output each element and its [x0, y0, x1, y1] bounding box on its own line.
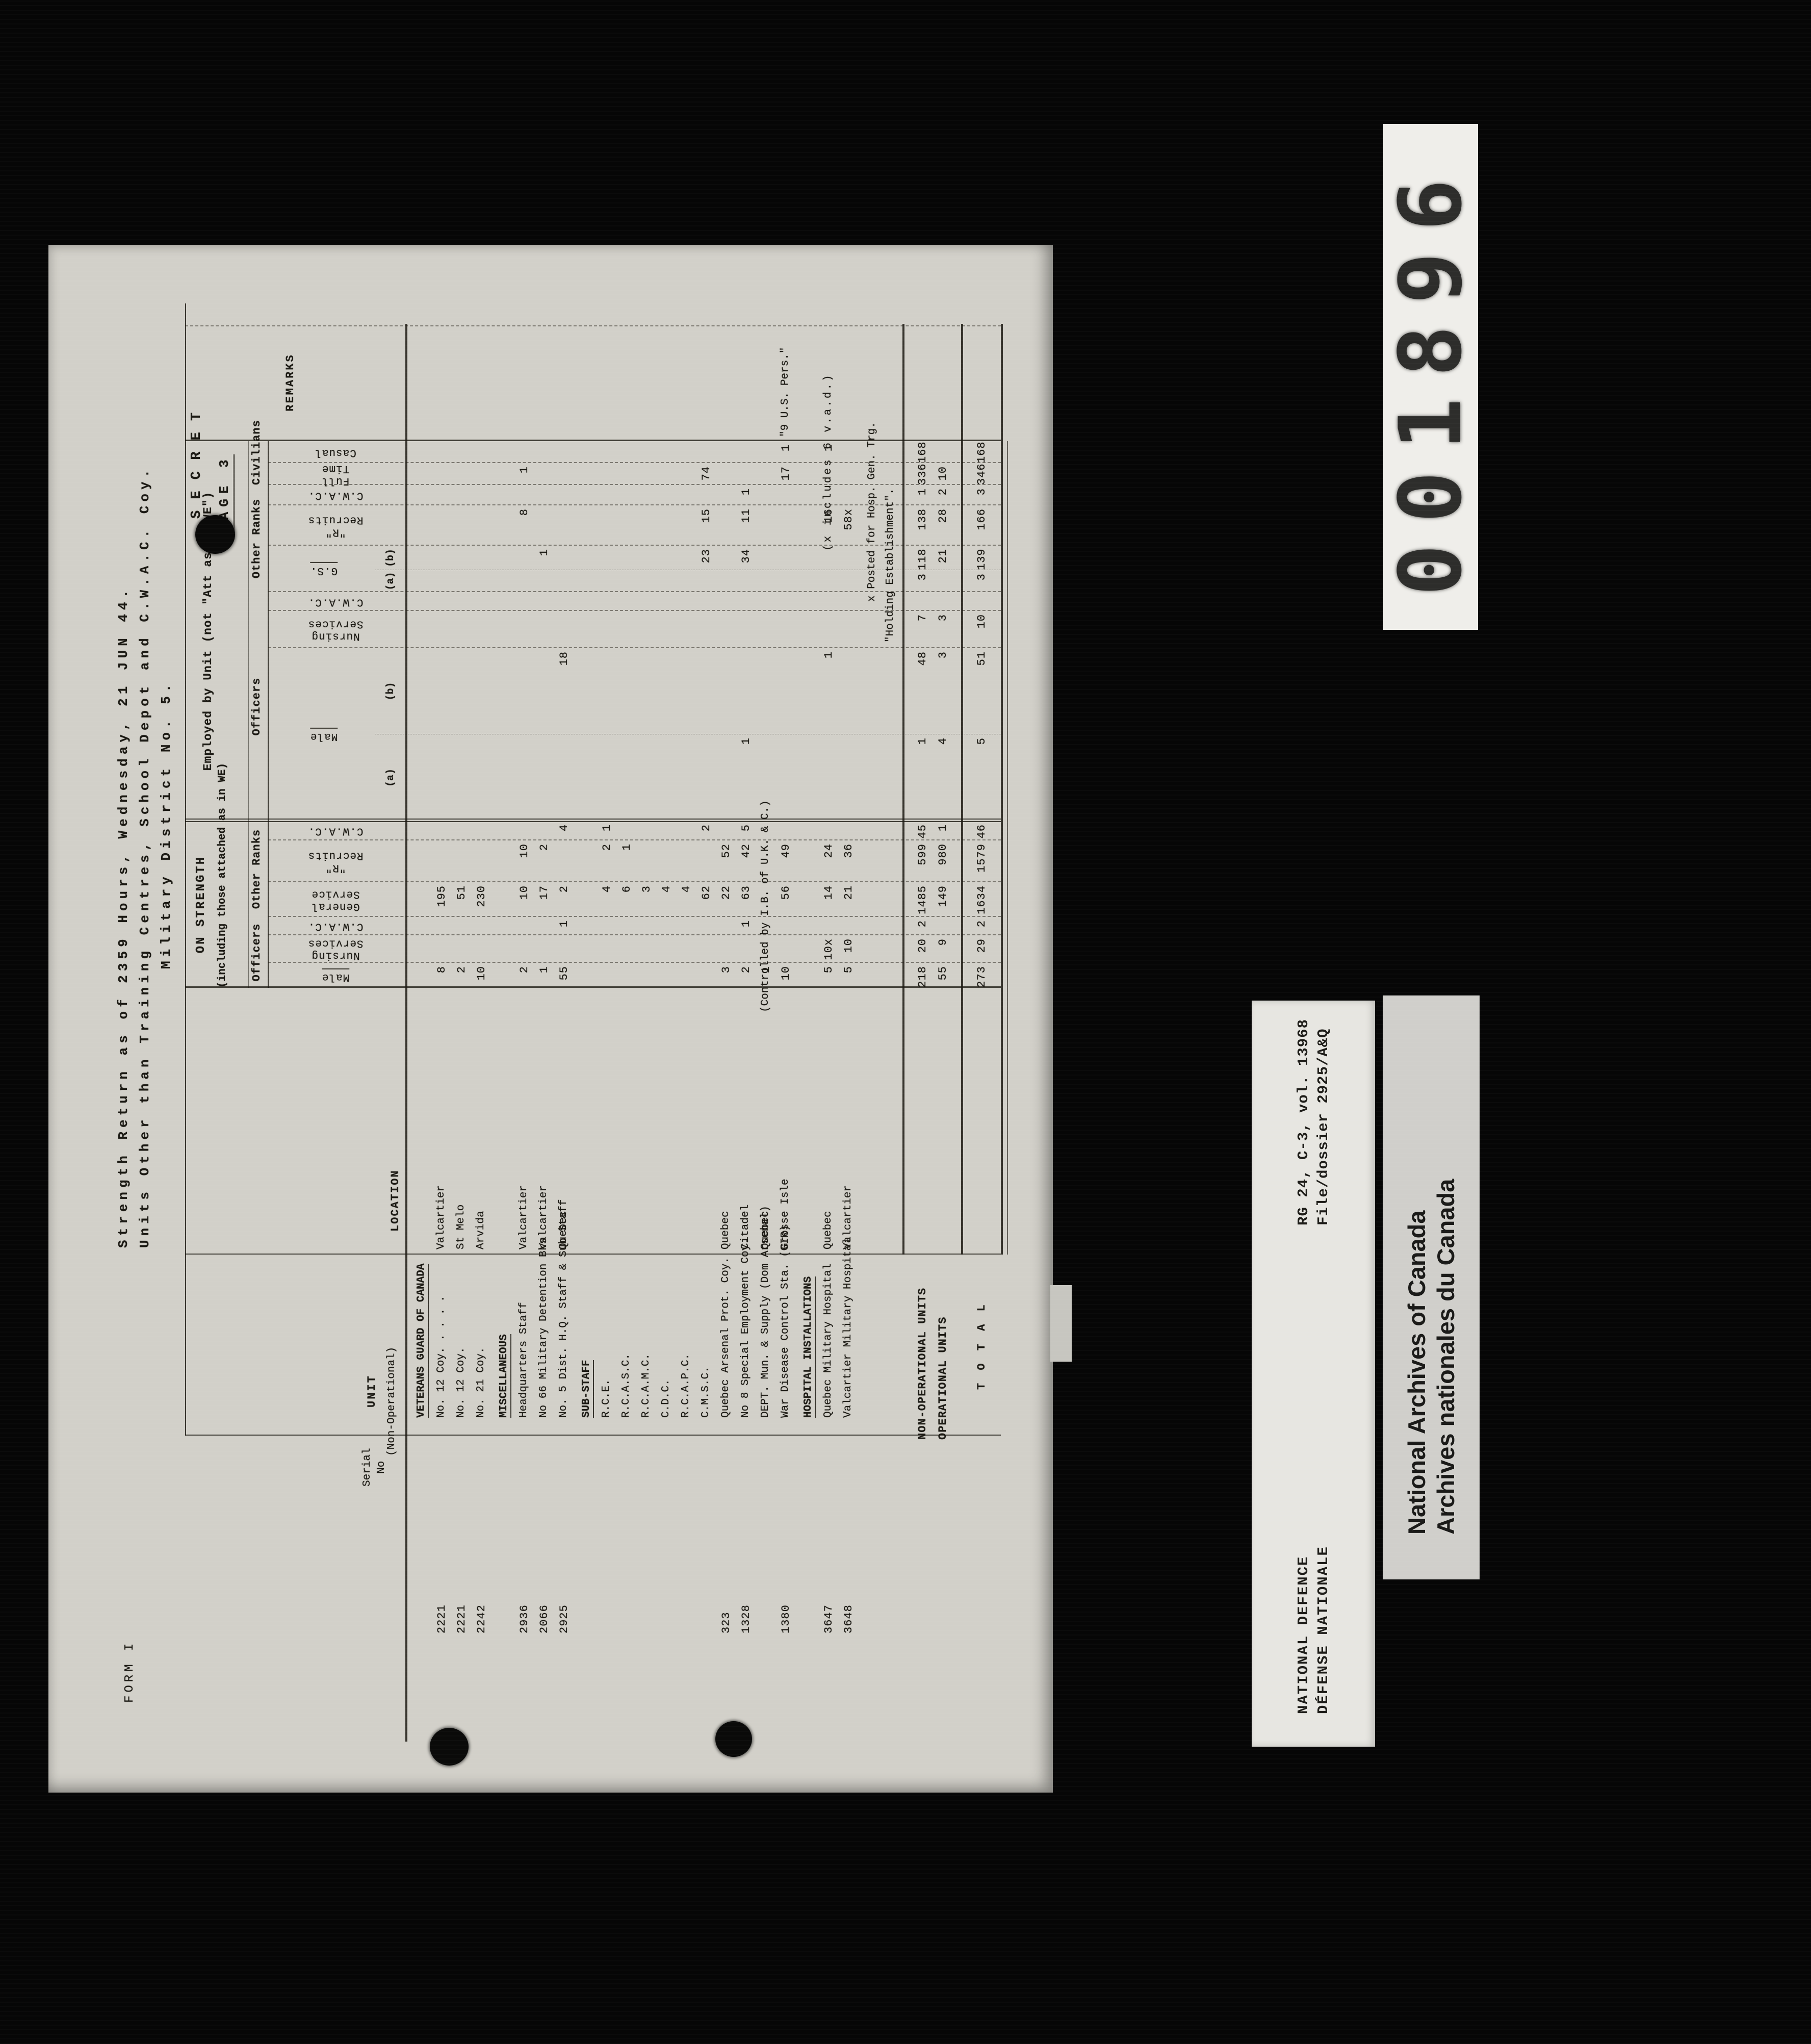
sub-column-label-e_gs_a: (a) — [385, 570, 397, 592]
cell-unit: R.C.A.P.C. — [680, 1353, 692, 1418]
column-header-os_male: Male — [272, 963, 399, 988]
cell-location: St Melo — [455, 1205, 467, 1249]
column-header-label: G.S. — [310, 561, 338, 576]
cell-os_male: 1 — [538, 966, 551, 988]
cell-os_gs: 230 — [475, 885, 488, 917]
document-scan: FORM IStrength Return as of 2359 Hours, … — [48, 245, 1053, 1793]
column-header-label: General Service — [311, 887, 359, 912]
cell-location: Valcartier — [842, 1185, 854, 1249]
cell-full_time: 336 — [916, 466, 929, 485]
column-header-e_male: Male — [272, 648, 376, 821]
footnote-line-1: x Posted for Hosp. Gen. Trg. — [866, 422, 878, 602]
column-header-e_nursing: Nursing Services — [272, 611, 399, 648]
column-header-label: Casual — [315, 446, 356, 458]
cell-e_nursing: 10 — [975, 614, 988, 648]
column-header-label: C.W.A.C. — [308, 825, 364, 837]
group-label-officers: Officers — [250, 592, 263, 821]
column-header-os_nursing: Nursing Services — [272, 935, 399, 963]
section-divider-line — [248, 441, 249, 988]
cell-e_gs_b: 139 — [975, 549, 988, 570]
national-defence-label: NATIONAL DEFENCE DÉFENSE NATIONALE — [1293, 1546, 1333, 1747]
cell-os_male: 2 — [740, 966, 753, 988]
cell-e_gs_b: 34 — [740, 549, 753, 570]
cell-note-controlled: (Controlled by I.B. of U.K. & C.) — [760, 800, 771, 1012]
cell-casual: 168 — [916, 444, 929, 463]
totals-mid-line — [961, 324, 963, 1255]
section-subtitle-on-strength: (including those attached as in WE) — [217, 821, 228, 988]
group-label-civilians: Civilians — [250, 441, 263, 485]
cell-unit: C.D.C. — [660, 1379, 672, 1418]
column-header-e_cwac_or: C.W.A.C. — [272, 485, 399, 505]
cell-serial: 1380 — [780, 1604, 792, 1633]
cell-serial: 2936 — [518, 1604, 531, 1633]
cell-serial: 2066 — [538, 1604, 551, 1633]
archive-reference-card: NATIONAL DEFENCE DÉFENSE NATIONALE RG 24… — [1252, 1001, 1375, 1747]
column-header-label: C.W.A.C. — [308, 595, 364, 607]
frame-counter-digits: 001896 — [1383, 124, 1478, 630]
cell-os_male: 3 — [720, 966, 733, 988]
row-total: NON-OPERATIONAL UNITS — [916, 1288, 929, 1440]
col-line-unit-location — [185, 1254, 1001, 1255]
cell-unit: No. 12 Coy. — [455, 1347, 467, 1418]
cell-os_nursing: 29 — [975, 938, 988, 963]
cell-os_male: 8 — [435, 966, 448, 988]
cell-full_time: 346 — [975, 466, 988, 485]
cell-os_r: 2 — [601, 844, 613, 882]
rg-line-2: File/dossier 2925/A&Q — [1313, 1019, 1333, 1225]
cell-os_gs: 63 — [740, 885, 753, 917]
archives-banner: National Archives of Canada Archives nat… — [1383, 995, 1480, 1579]
cell-location: Quebec — [720, 1211, 732, 1249]
cell-os_gs: 2 — [558, 885, 571, 917]
cell-os_cwac_or: 5 — [740, 824, 753, 840]
cell-e_male_b: 51 — [975, 651, 988, 734]
microfilm-frame: FORM IStrength Return as of 2359 Hours, … — [0, 0, 1811, 2044]
cell-os_nursing: 9 — [937, 938, 949, 963]
cell-e_gs_a: 3 — [916, 573, 929, 592]
cell-os_r: 42 — [740, 844, 753, 882]
cell-os_cwac_off: 1 — [558, 920, 571, 935]
cell-e_gs_b: 23 — [700, 549, 713, 570]
cell-e_cwac_or: 2 — [937, 488, 949, 505]
cell-serial: 3648 — [842, 1604, 855, 1633]
cell-os_male: 55 — [558, 966, 571, 988]
cell-e_r: 166 — [975, 508, 988, 546]
cell-os_gs: 10 — [518, 885, 531, 917]
section-title-employed: Employed by Unit (not "Att as in WE") — [201, 441, 215, 821]
sub-column-label-e_gs_b: (b) — [385, 546, 397, 570]
col-line-serial-unit — [185, 1435, 1001, 1436]
form-title-line: Strength Return as of 2359 Hours, Wednes… — [116, 586, 131, 1248]
cell-e_r: 11 — [740, 508, 753, 546]
header-bottom-line — [405, 324, 407, 1742]
cell-unit: No 66 Military Detention Bks — [538, 1238, 550, 1418]
rg-reference-label: RG 24, C-3, vol. 13968 File/dossier 2925… — [1293, 1001, 1333, 1225]
totals-bottom-line — [1001, 324, 1003, 1255]
cell-unit: Quebec Arsenal Prot. Coy. — [720, 1257, 732, 1418]
column-header-label: "R" Recruits — [308, 849, 364, 874]
totals-top-line — [902, 324, 904, 1255]
column-header-location: LOCATION — [389, 1169, 402, 1232]
cell-unit: C.M.S.C. — [700, 1366, 712, 1418]
cell-e_male_b: 48 — [916, 651, 929, 734]
cell-unit: R.C.E. — [601, 1379, 612, 1418]
cell-os_gs: 195 — [435, 885, 448, 917]
cell-os_male: 2 — [455, 966, 468, 988]
table-top-line — [185, 303, 186, 1436]
cell-os_male: 5 — [842, 966, 855, 988]
cell-os_gs: 4 — [601, 885, 613, 917]
column-header-e_r: "R" Recruits — [272, 505, 399, 546]
cell-e_male_a: 1 — [740, 737, 753, 821]
cell-os_r: 24 — [822, 844, 835, 882]
cell-os_r: 980 — [937, 844, 949, 882]
cell-unit: War Disease Control Sta. (GIR) — [780, 1225, 791, 1418]
cell-os_gs: 17 — [538, 885, 551, 917]
row-heading: SUB-STAFF — [581, 1360, 592, 1418]
cell-casual: 1 — [780, 444, 792, 463]
cell-e_cwac_or: 3 — [975, 488, 988, 505]
cell-os_male: 273 — [975, 966, 988, 988]
cell-full_time: 17 — [780, 466, 792, 485]
cell-os_r: 2 — [538, 844, 551, 882]
cell-location: Valcartier — [518, 1185, 530, 1249]
cell-e_gs_b: 118 — [916, 549, 929, 570]
row-heading: HOSPITAL INSTALLATIONS — [803, 1276, 814, 1418]
cell-os_r: 599 — [916, 844, 929, 882]
cell-os_r: 52 — [720, 844, 733, 882]
form-number: FORM I — [123, 1641, 137, 1703]
cell-location: Valcartier — [538, 1185, 550, 1249]
row-heading: VETERANS GUARD OF CANADA — [416, 1264, 427, 1418]
column-header-unit-sub: (Non-Operational) — [386, 1347, 398, 1456]
cell-location: Citadel — [740, 1205, 752, 1249]
cell-serial: 2221 — [435, 1604, 448, 1633]
cell-remark: "9 U.S. Pers." — [780, 347, 791, 437]
cell-os_male: 218 — [916, 966, 929, 988]
cell-os_male: 10 — [475, 966, 488, 988]
table-right-line — [185, 325, 1001, 326]
film-frame-counter: 001896 — [1383, 124, 1478, 630]
sub-col-line — [375, 734, 1001, 734]
cell-e_nursing: 3 — [937, 614, 949, 648]
cell-unit: No 8 Special Employment Coy. — [740, 1238, 752, 1418]
row-total: OPERATIONAL UNITS — [937, 1317, 949, 1440]
cell-e_r: 58x — [842, 508, 855, 546]
column-header-label: Nursing Services — [308, 937, 364, 961]
cell-e_cwac_or: 1 — [916, 488, 929, 505]
totals-bottom-line-2 — [1007, 441, 1008, 1255]
defence-line-en: NATIONAL DEFENCE — [1293, 1546, 1313, 1714]
cell-os_cwac_or: 46 — [975, 824, 988, 840]
cell-os_gs: 6 — [620, 885, 633, 917]
group-divider-line — [268, 441, 269, 988]
paper-edge-fragment — [1050, 1285, 1072, 1362]
cell-unit: Valcartier Military Hospital — [842, 1238, 854, 1418]
cell-os_r: 49 — [780, 844, 792, 882]
cell-os_cwac_off: 2 — [975, 920, 988, 935]
sub-column-label-e_male_a: (a) — [385, 734, 397, 821]
cell-full_time: 74 — [700, 466, 713, 485]
cell-os_r: 36 — [842, 844, 855, 882]
cell-os_cwac_or: 2 — [700, 824, 713, 840]
cell-unit: No. 12 Coy. . . . . — [435, 1296, 447, 1418]
cell-os_gs: 51 — [455, 885, 468, 917]
form-title-line: Military District No. 5. — [159, 680, 174, 969]
cell-os_gs: 62 — [700, 885, 713, 917]
column-header-label: Male — [310, 727, 338, 742]
cell-serial: 1328 — [740, 1604, 753, 1633]
cell-unit: R.C.A.M.C. — [640, 1353, 652, 1418]
cell-e_gs_b: 21 — [937, 549, 949, 570]
cell-full_time: 10 — [937, 466, 949, 485]
cell-os_male: 5 — [822, 966, 835, 988]
punch-hole — [430, 1728, 469, 1766]
cell-os_r: 10 — [518, 844, 531, 882]
cell-location: Quebec — [760, 1211, 771, 1249]
cell-e_male_a: 5 — [975, 737, 988, 821]
cell-serial: 3647 — [822, 1604, 835, 1633]
column-header-label: Male — [322, 968, 349, 982]
footnote-line-2: "Holding Establishment". — [885, 489, 896, 643]
column-header-label: Full Time — [322, 462, 349, 486]
cell-e_cwac_or: 1 — [740, 488, 753, 505]
column-header-label: Nursing Services — [308, 617, 364, 642]
cell-os_gs: 149 — [937, 885, 949, 917]
cell-os_nursing: 20 — [916, 938, 929, 963]
cell-unit: Quebec Military Hospital — [822, 1264, 834, 1418]
cell-os_cwac_off: 2 — [916, 920, 929, 935]
cell-location: Quebec — [822, 1211, 834, 1249]
cell-e_nursing: 7 — [916, 614, 929, 648]
cell-remark-overlay: (x includes 6 v.a.d.) — [822, 373, 834, 551]
cell-os_male: 10 — [780, 966, 792, 988]
cell-e_r: 138 — [916, 508, 929, 546]
sub-column-label-e_male_b: (b) — [385, 648, 397, 734]
form-title-line: Units Other than Training Centres, Schoo… — [137, 466, 152, 1248]
cell-os_gs: 21 — [842, 885, 855, 917]
cell-os_cwac_or: 1 — [937, 824, 949, 840]
cell-os_gs: 22 — [720, 885, 733, 917]
sub-col-line — [375, 570, 1001, 570]
defence-line-fr: DÉFENSE NATIONALE — [1313, 1546, 1333, 1714]
column-header-os_cwac_or: C.W.A.C. — [272, 821, 399, 840]
cell-e_male_b: 18 — [558, 651, 571, 734]
cell-e_r: 28 — [937, 508, 949, 546]
column-header-e_gs: G.S. — [272, 546, 376, 592]
cell-serial: 2925 — [558, 1604, 571, 1633]
punch-hole — [195, 515, 235, 554]
cell-os_gs: 1485 — [916, 885, 929, 917]
cell-full_time: 1 — [518, 466, 531, 485]
cell-e_gs_a: 3 — [975, 573, 988, 592]
column-header-casual: Casual — [272, 441, 399, 463]
cell-unit: No. 21 Coy. — [475, 1347, 487, 1418]
column-header-os_cwac_off: C.W.A.C. — [272, 917, 399, 935]
cell-os_r: 1 — [620, 844, 633, 882]
cell-location: Arvida — [475, 1211, 487, 1249]
cell-location: Valcartier — [435, 1185, 447, 1249]
cell-casual: 168 — [975, 444, 988, 463]
section-title-on-strength: ON STRENGTH — [194, 821, 208, 988]
group-label-other-ranks: Other Ranks — [250, 821, 263, 917]
cell-os_r: 1579 — [975, 844, 988, 882]
cell-os_nursing: 10 — [842, 938, 855, 963]
cell-e_male_b: 3 — [937, 651, 949, 734]
row-heading: MISCELLANEOUS — [498, 1334, 510, 1418]
column-header-serial: Serial No — [360, 1448, 390, 1487]
rg-line-1: RG 24, C-3, vol. 13968 — [1293, 1019, 1313, 1225]
group-label-other-ranks: Other Ranks — [250, 485, 263, 592]
cell-unit: Headquarters Staff — [518, 1302, 530, 1418]
cell-e_r: 15 — [700, 508, 713, 546]
group-label-officers: Officers — [250, 917, 263, 988]
cell-os_cwac_or: 4 — [558, 824, 571, 840]
column-header-label: "R" Recruits — [308, 513, 364, 538]
cell-os_cwac_or: 45 — [916, 824, 929, 840]
column-header-remarks: REMARKS — [284, 324, 297, 441]
column-header-os_gs: General Service — [272, 882, 399, 917]
column-header-label: C.W.A.C. — [308, 920, 364, 932]
cell-os_gs: 4 — [680, 885, 693, 917]
cell-os_cwac_or: 1 — [601, 824, 613, 840]
cell-os_gs: 14 — [822, 885, 835, 917]
punch-hole — [715, 1721, 752, 1757]
cell-unit: R.C.A.S.C. — [620, 1353, 632, 1418]
cell-e_r: 8 — [518, 508, 531, 546]
column-header-label: C.W.A.C. — [308, 489, 364, 501]
column-header-os_r: "R" Recruits — [272, 840, 399, 882]
cell-os_cwac_off: 1 — [740, 920, 753, 935]
row-grand-total: T O T A L — [975, 1301, 988, 1390]
cell-serial: 323 — [720, 1612, 733, 1633]
column-header-unit: UNIT — [366, 1374, 378, 1408]
cell-os_gs: 1634 — [975, 885, 988, 917]
cell-e_male_a: 1 — [916, 737, 929, 821]
cell-os_gs: 56 — [780, 885, 792, 917]
cell-location: Quebec — [558, 1211, 570, 1249]
column-header-full_time: Full Time — [272, 463, 399, 485]
column-header-e_cwac_off: C.W.A.C. — [272, 592, 399, 611]
cell-os_gs: 3 — [640, 885, 653, 917]
cell-os_nursing: 10x — [822, 938, 835, 963]
strength-return-form: FORM IStrength Return as of 2359 Hours, … — [48, 245, 1053, 1793]
archives-line-en: National Archives of Canada — [1402, 995, 1431, 1535]
cell-serial: 2242 — [475, 1604, 488, 1633]
cell-os_gs: 4 — [660, 885, 673, 917]
cell-os_male: 2 — [518, 966, 531, 988]
cell-e_male_a: 4 — [937, 737, 949, 821]
cell-serial: 2221 — [455, 1604, 468, 1633]
cell-e_male_b: 1 — [822, 651, 835, 734]
cell-e_gs_b: 1 — [538, 549, 551, 570]
cell-location: Grosse Isle — [780, 1179, 791, 1249]
archives-line-fr: Archives nationales du Canada — [1431, 995, 1460, 1535]
cell-os_male: 55 — [937, 966, 949, 988]
